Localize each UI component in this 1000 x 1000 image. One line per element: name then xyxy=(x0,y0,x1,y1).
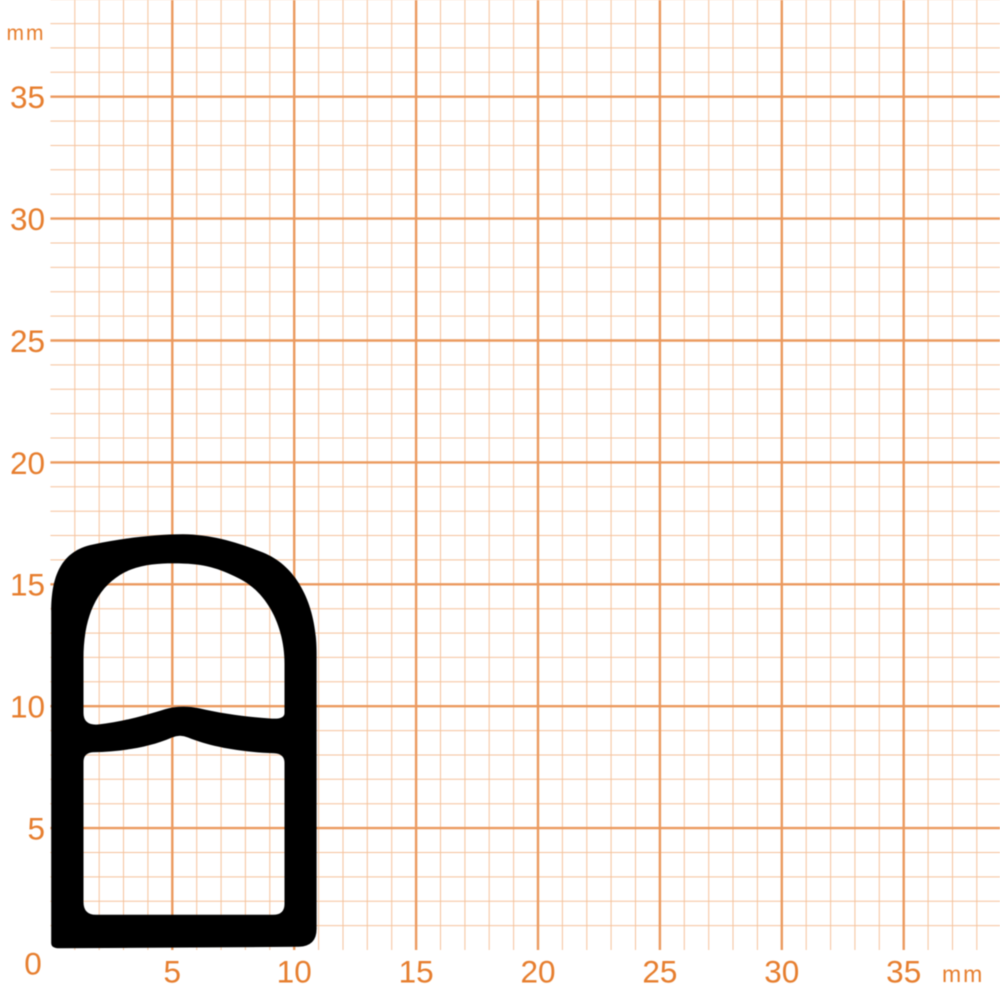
svg-text:30: 30 xyxy=(10,201,45,237)
svg-text:35: 35 xyxy=(886,954,921,990)
svg-text:20: 20 xyxy=(10,445,45,481)
svg-text:30: 30 xyxy=(764,954,799,990)
svg-text:10: 10 xyxy=(10,689,45,725)
svg-text:mm: mm xyxy=(942,961,984,987)
svg-text:20: 20 xyxy=(520,954,555,990)
svg-text:5: 5 xyxy=(164,954,182,990)
svg-text:25: 25 xyxy=(10,323,45,359)
svg-text:15: 15 xyxy=(10,567,45,603)
svg-text:10: 10 xyxy=(277,954,312,990)
svg-text:15: 15 xyxy=(399,954,434,990)
svg-text:5: 5 xyxy=(27,811,45,847)
svg-text:25: 25 xyxy=(642,954,677,990)
svg-text:35: 35 xyxy=(10,79,45,115)
svg-text:mm: mm xyxy=(7,22,46,45)
svg-text:0: 0 xyxy=(24,945,42,981)
